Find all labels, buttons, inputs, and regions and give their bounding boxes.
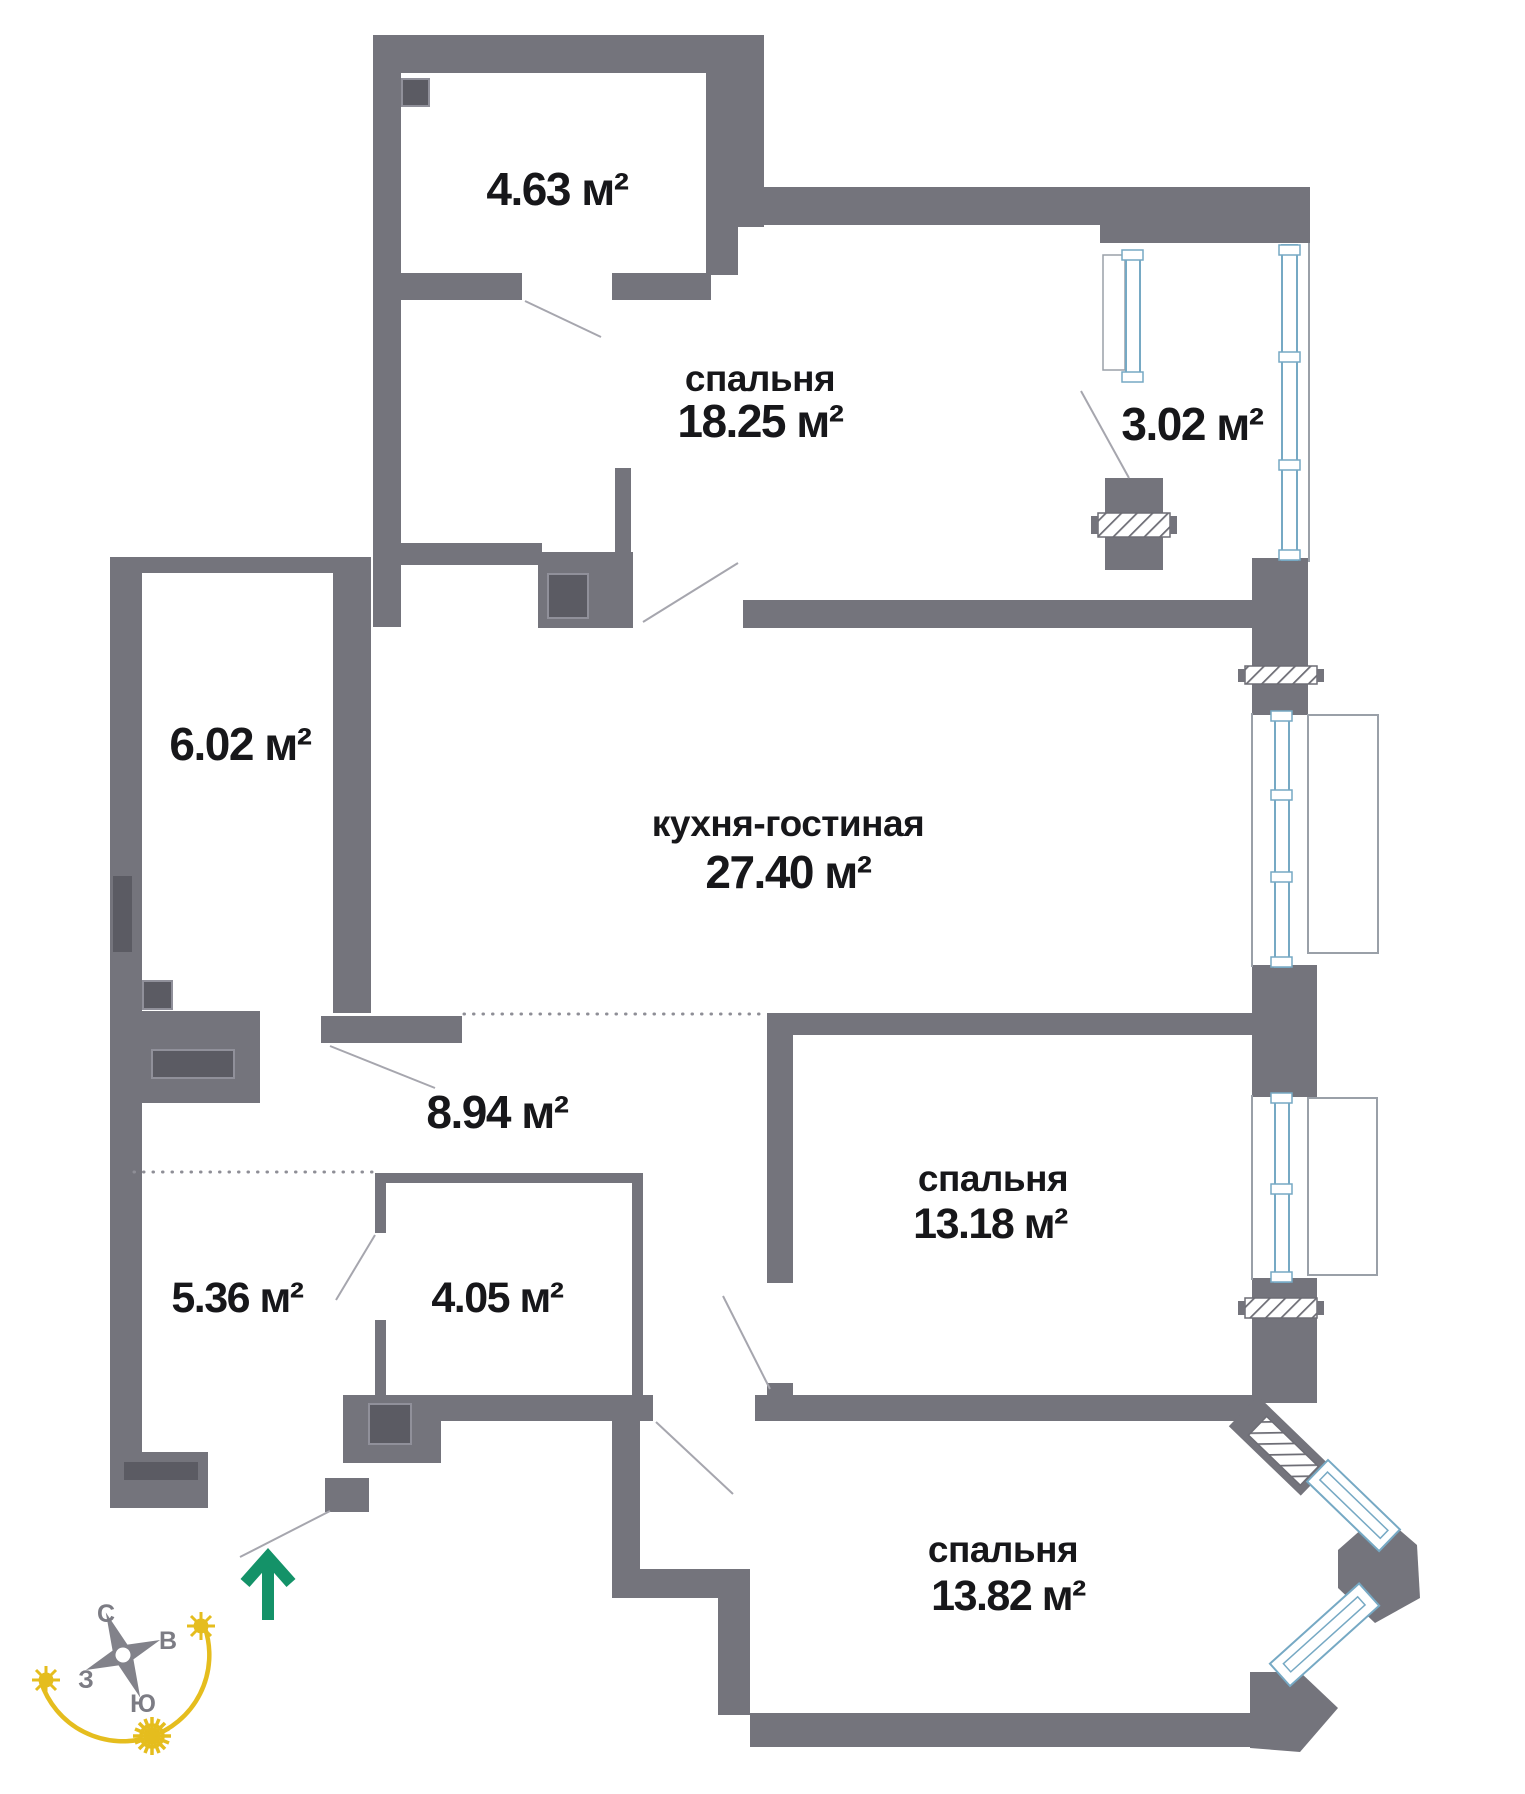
sun-icon-south [133,1717,171,1755]
kitchen-window [1252,711,1378,967]
compass-south-label: Ю [130,1690,156,1718]
compass-west-label: З [78,1666,94,1694]
room-label-balcony: 3.02 м² [1121,398,1263,450]
bay-window-lower [1270,1583,1379,1686]
balcony-inner-window [1103,250,1143,382]
sun-icon-east [187,1612,215,1640]
compass-north-label: С [97,1600,115,1628]
room-name-bedroom-top: спальня [685,358,835,399]
room-label-bedroom-right: 13.18 м² [913,1200,1068,1248]
room-label-hall: 5.36 м² [171,1274,303,1322]
room-label-kitchen: 27.40 м² [705,846,871,898]
room-name-kitchen: кухня-гостиная [652,803,924,844]
bedroom-right-window [1252,1093,1377,1282]
compass-rose [69,1597,178,1712]
windows [1103,243,1400,1686]
floor-plan: 4.63 м² спальня 18.25 м² 3.02 м² 6.02 м²… [0,0,1525,1794]
compass-east-label: В [159,1627,177,1655]
room-label-bathroom: 4.05 м² [431,1274,563,1322]
entrance-arrow-icon [245,1557,291,1620]
room-label-storage: 4.63 м² [486,163,628,215]
room-label-dressing: 6.02 м² [169,718,311,770]
compass-icon: С В З Ю [32,1597,215,1755]
room-label-bedroom-top: 18.25 м² [677,395,843,447]
room-name-bedroom-bottom: спальня [928,1529,1078,1570]
balcony-glazing [1279,243,1309,562]
room-label-hallway: 8.94 м² [426,1086,568,1138]
room-name-bedroom-right: спальня [918,1158,1068,1199]
room-label-bedroom-bottom: 13.82 м² [931,1572,1086,1620]
sun-icon-west [32,1666,60,1694]
